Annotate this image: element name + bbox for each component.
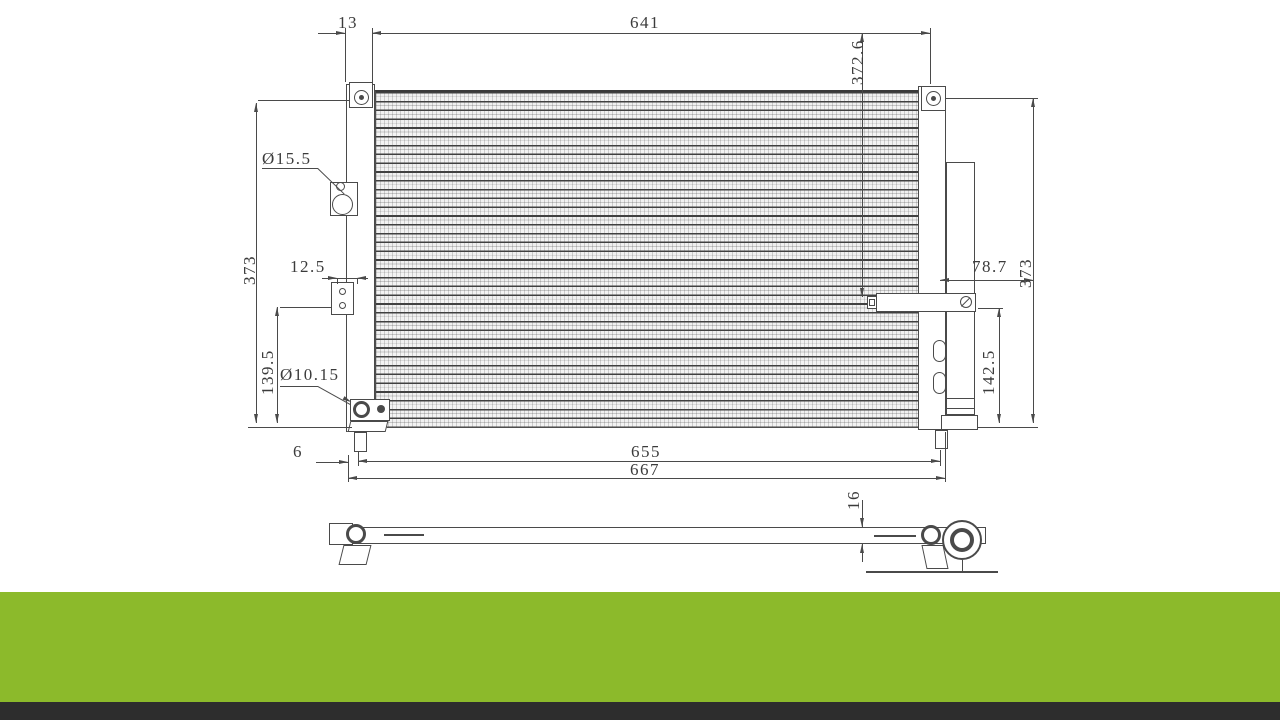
dim-label-pin-offset: 6: [293, 443, 303, 460]
arrowhead: [358, 459, 367, 463]
extension-line: [258, 100, 349, 101]
dim-label-core-width: 641: [630, 14, 660, 31]
mount-pin-bottom-left: [354, 432, 367, 452]
profile-right-grommet: [921, 525, 941, 545]
arrowhead: [328, 276, 337, 280]
footer-band: [0, 702, 1280, 720]
arrowhead: [860, 288, 864, 297]
arrowhead: [997, 414, 1001, 423]
upper-port-hole: [332, 194, 353, 215]
profile-slot-left: [384, 534, 424, 536]
dimension-line: [277, 307, 278, 423]
receiver-drier: [946, 162, 975, 415]
arrowhead: [254, 414, 258, 423]
extension-line: [940, 450, 941, 466]
arrowhead: [372, 31, 381, 35]
lower-port-dot: [377, 405, 385, 413]
arrowhead: [339, 460, 348, 464]
extension-line: [337, 278, 338, 284]
arrowhead: [997, 308, 1001, 317]
arrowhead: [275, 414, 279, 423]
mount-pin-bottom-right: [935, 430, 948, 449]
receiver-drier-line: [946, 398, 975, 399]
mount-hole-top-left-center: [359, 95, 364, 100]
extension-line: [930, 28, 931, 84]
arrowhead: [275, 307, 279, 316]
dim-label-bracket-width: 12.5: [290, 258, 326, 275]
dim-label-inner-height: 372.6: [849, 39, 866, 85]
profile-left-grommet: [346, 524, 366, 544]
extension-line: [345, 28, 346, 82]
extension-line: [372, 28, 373, 88]
leader-underline: [262, 168, 318, 169]
profile-left-foot: [339, 545, 372, 565]
dim-label-right-height: 373: [1017, 258, 1034, 288]
leader-underline: [280, 386, 318, 387]
dim-label-lower-span: 139.5: [259, 349, 276, 395]
drier-clip-upper: [933, 340, 946, 362]
profile-slot-right: [874, 535, 916, 537]
profile-drier-inner: [950, 528, 974, 552]
arrowhead: [931, 459, 940, 463]
left-header-tank: [346, 84, 375, 432]
arrowhead: [860, 544, 864, 553]
foot-bracket-bottom-left: [348, 421, 389, 432]
dim-label-lower-port: Ø10.15: [280, 366, 340, 383]
extension-line: [280, 307, 331, 308]
dim-label-pipe-to-base: 142.5: [980, 349, 997, 395]
middle-bracket-hole-bottom: [339, 302, 346, 309]
arrowhead: [357, 276, 366, 280]
drier-bottom-bracket: [941, 415, 978, 430]
profile-drier-leg: [962, 560, 963, 571]
drawing-canvas: 13 641 372.6 373 Ø15.5 12.5 139.5 Ø10.15: [0, 0, 1280, 720]
extension-line: [945, 432, 946, 482]
extension-line: [357, 278, 358, 284]
arrowhead: [1031, 414, 1035, 423]
arrowhead: [940, 278, 949, 282]
arrowhead: [921, 31, 930, 35]
middle-bracket-hole-top: [339, 288, 346, 295]
dimension-line: [372, 33, 930, 34]
receiver-drier-line: [946, 408, 975, 409]
condenser-core: [375, 90, 920, 428]
arrowhead: [860, 518, 864, 527]
dim-label-header-width: 13: [338, 14, 358, 31]
outlet-pipe-cap-detail: [869, 299, 875, 306]
dim-label-profile-thickness: 16: [845, 490, 862, 510]
drier-clip-lower: [933, 372, 946, 394]
arrowhead: [254, 103, 258, 112]
extension-line: [946, 98, 1038, 99]
arrowhead: [348, 476, 357, 480]
dim-label-overall-width: 667: [630, 461, 660, 478]
arrowhead: [936, 476, 945, 480]
dimension-line: [999, 308, 1000, 423]
lower-port-hole: [353, 401, 370, 418]
dim-label-upper-port: Ø15.5: [262, 150, 312, 167]
accent-band: [0, 592, 1280, 702]
extension-line: [978, 427, 1038, 428]
dim-label-mounting-span: 655: [631, 443, 661, 460]
arrowhead: [1031, 98, 1035, 107]
extension-line: [248, 427, 352, 428]
mount-hole-top-right-center: [931, 96, 936, 101]
dim-label-pipe-stub: 78.7: [972, 258, 1008, 275]
dim-label-left-height: 373: [241, 255, 258, 285]
middle-bracket: [331, 282, 354, 315]
profile-base-line: [866, 571, 998, 573]
